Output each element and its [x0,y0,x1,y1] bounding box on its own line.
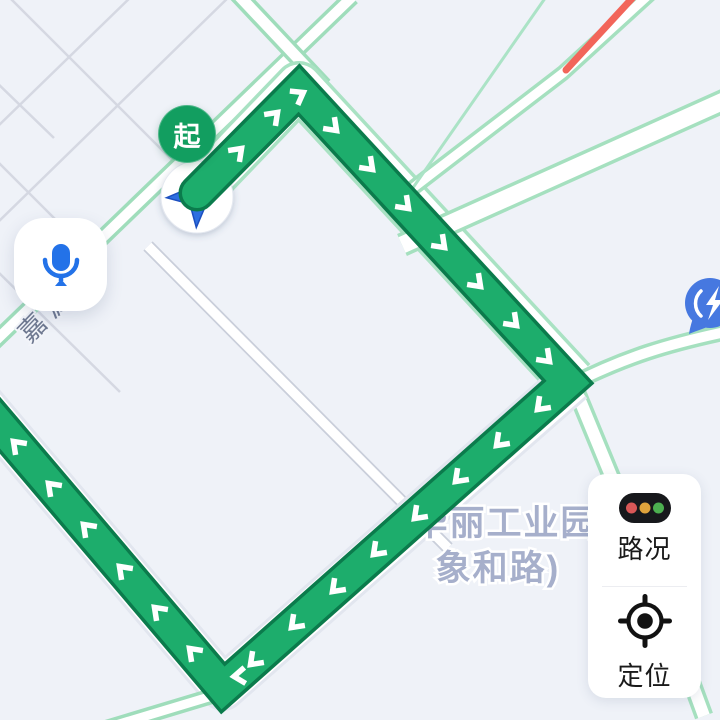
poi-label-line2: 象和路) [436,549,561,588]
ev-charging-pin-icon[interactable] [685,278,720,334]
microphone-icon [36,240,86,290]
traffic-button-label: 路况 [617,529,671,566]
route-start-marker: 起 [158,105,216,163]
map-control-panel: 路况 定位 [588,474,701,698]
traffic-button[interactable]: 路况 [588,474,701,586]
voice-assistant-button[interactable] [14,218,107,311]
locate-button[interactable]: 定位 [588,587,701,699]
locate-button-label: 定位 [617,656,671,693]
map-view[interactable]: 华丽工业园 象和路) 嘉源路 [0,0,720,720]
traffic-dots-icon [619,493,671,523]
crosshair-icon [616,592,674,650]
